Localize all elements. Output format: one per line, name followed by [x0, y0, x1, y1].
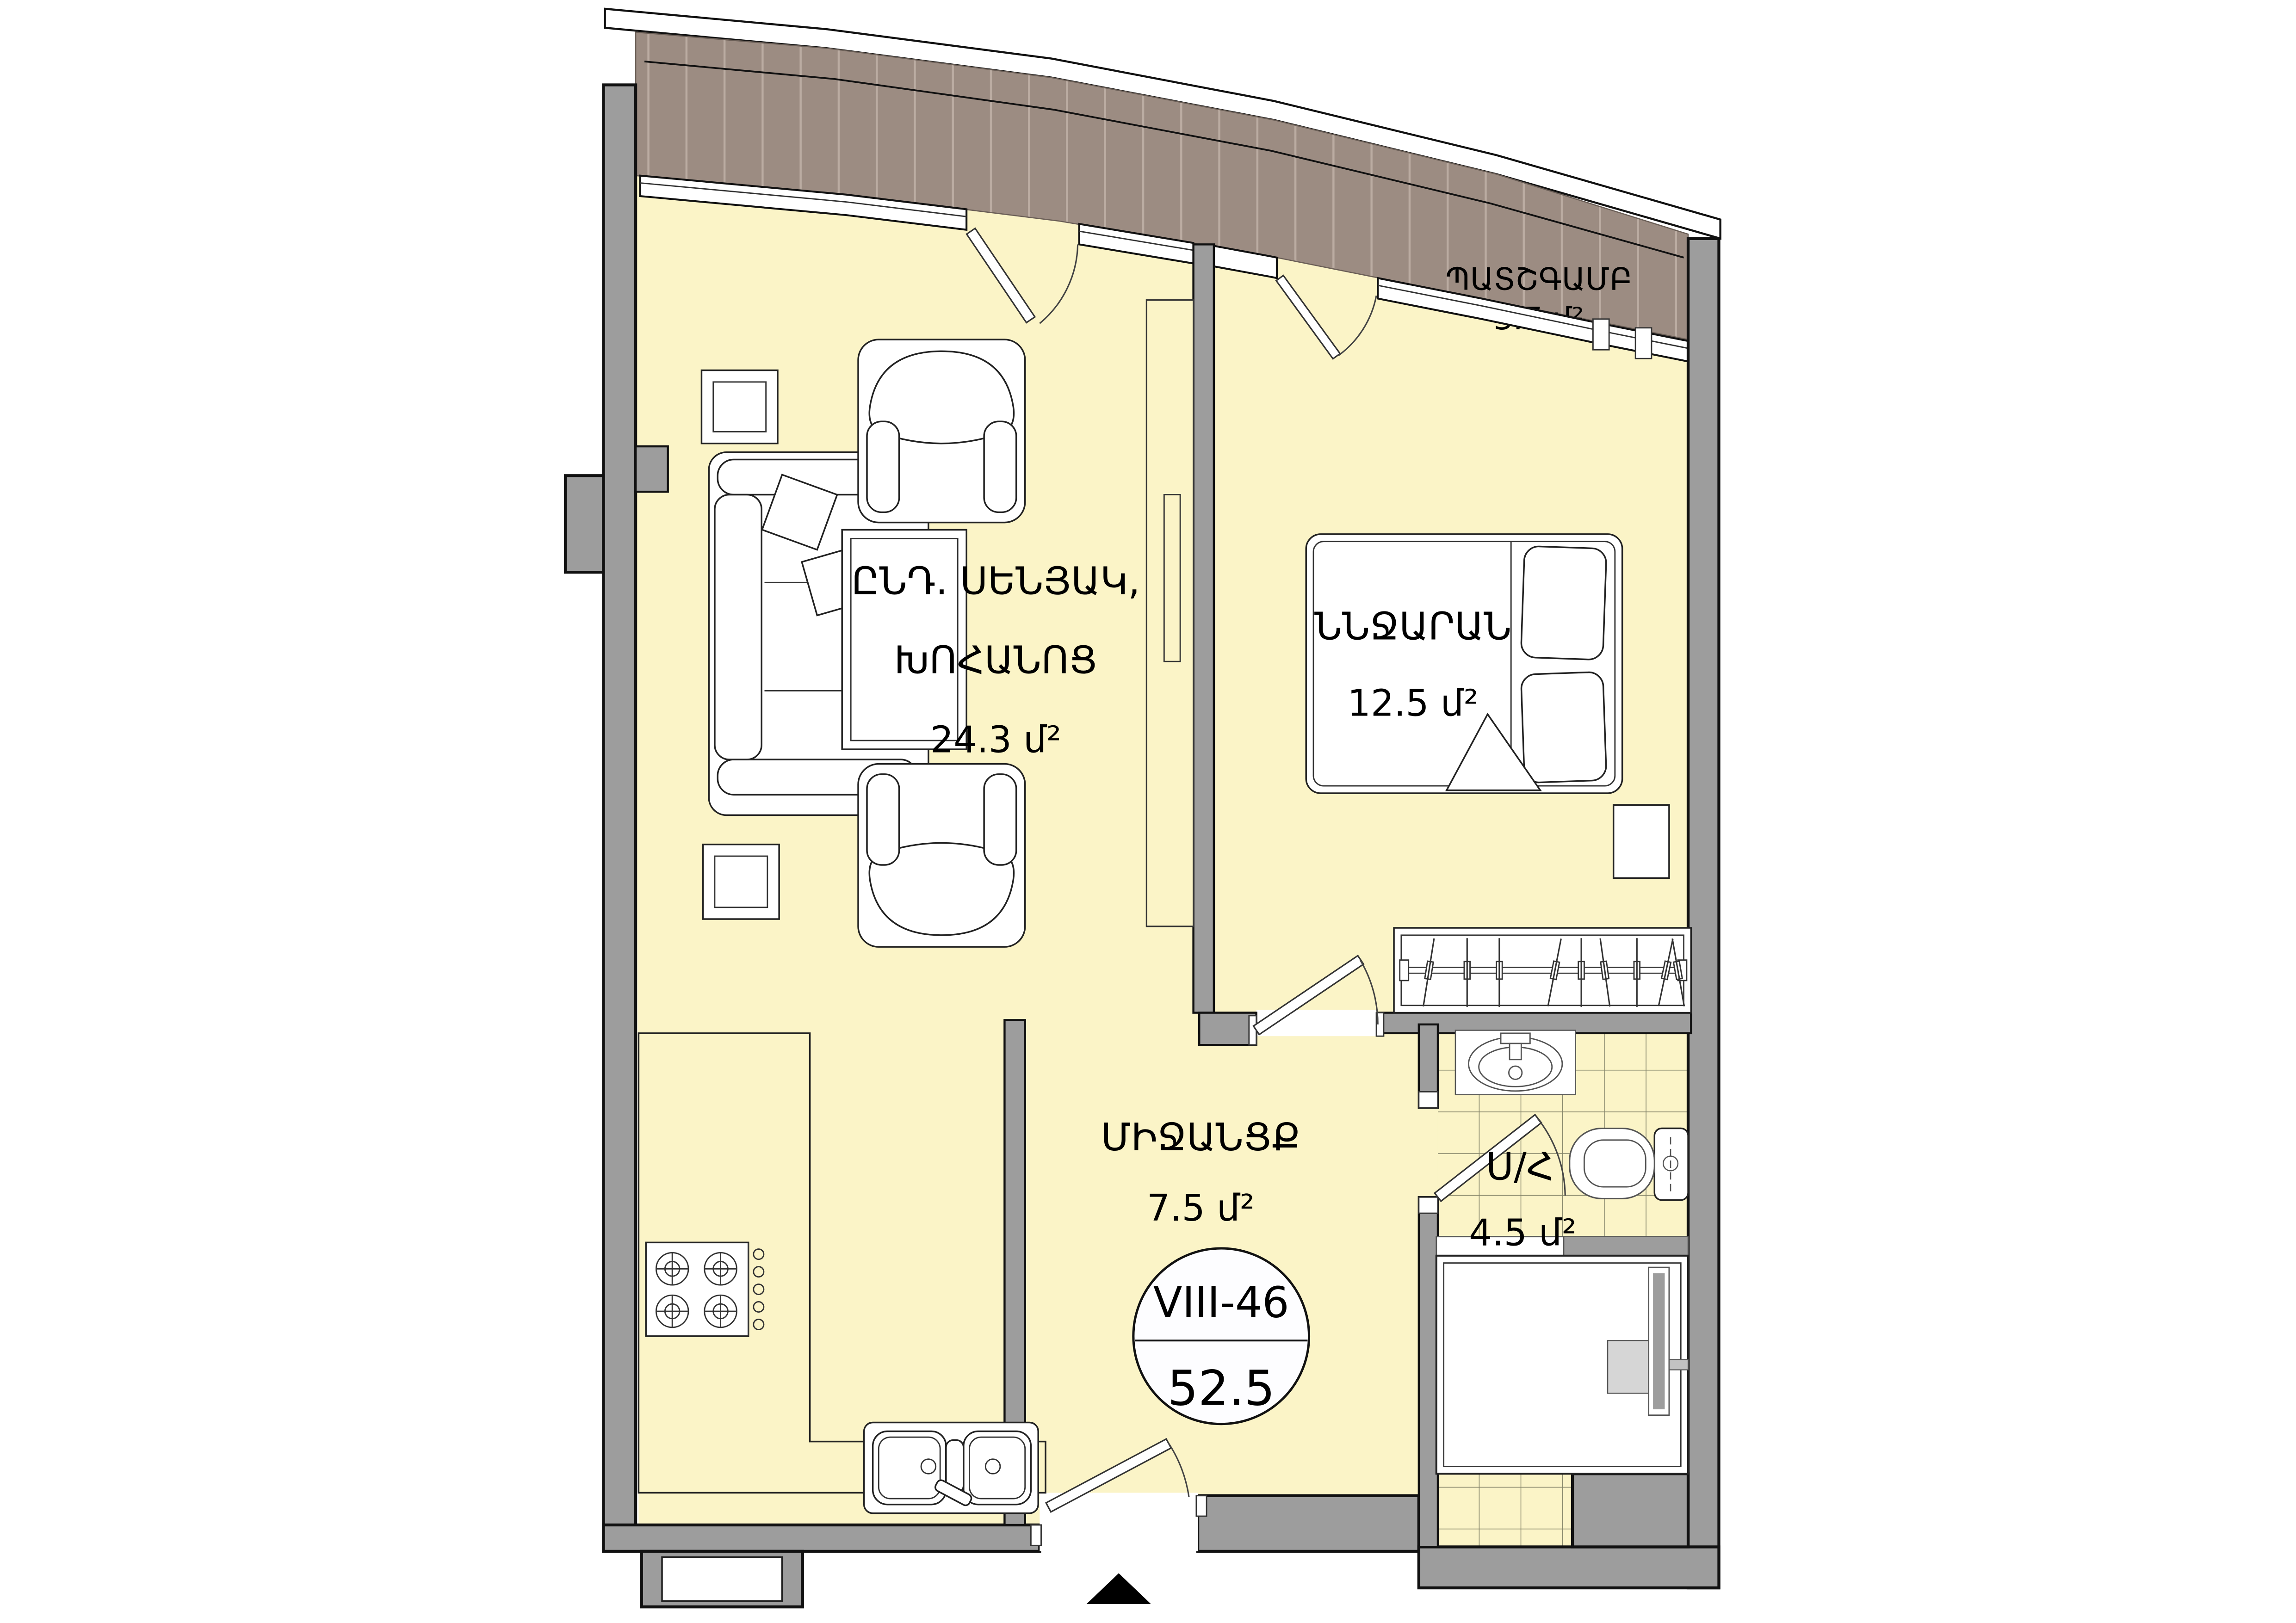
wall-bottom-bathroom — [1419, 1547, 1719, 1588]
washbasin — [1455, 1031, 1575, 1095]
hallway-area: 7.5 մ² — [1147, 1187, 1255, 1229]
tv-cabinet-body — [1146, 300, 1193, 926]
wall-left-pier — [565, 475, 603, 572]
jamb-bath-top — [1419, 1092, 1438, 1108]
floor-plan-page: ՊԱՏՇԳԱՄԲ 3.7 մ² — [0, 0, 2296, 1623]
tv-cabinet — [1146, 300, 1193, 926]
toilet-bowl — [1570, 1129, 1655, 1199]
wall-right-outer — [1688, 239, 1719, 1588]
washbasin-faucet-bar — [1501, 1033, 1530, 1043]
balcony-label: ՊԱՏՇԳԱՄԲ — [1446, 261, 1632, 297]
armchair-bottom — [858, 764, 1025, 947]
wall-bottom-right — [1198, 1496, 1419, 1551]
bathtub-wall-strip — [1564, 1237, 1688, 1256]
wardrobe-rail-end-left — [1400, 960, 1409, 981]
bed-pillow-1 — [1521, 546, 1606, 660]
stove — [646, 1242, 764, 1336]
nightstand — [1614, 805, 1669, 878]
unit-id: VIII-46 — [1153, 1278, 1289, 1327]
jamb-entry-left — [1031, 1525, 1041, 1545]
window-jamb-block-2 — [1635, 328, 1652, 358]
living-label-line1: ԸՆԴ. ՍԵՆՅԱԿ, — [851, 560, 1140, 604]
jamb-entry-right — [1196, 1496, 1207, 1516]
wardrobe — [1394, 928, 1691, 1013]
wall-divider-stub — [1199, 1013, 1256, 1045]
north-entry-marker-icon — [1087, 1573, 1151, 1604]
unit-badge: VIII-46 52.5 — [1133, 1248, 1309, 1424]
hallway-label: ՄԻՋԱՆՑՔ — [1101, 1116, 1301, 1160]
bedroom-area: 12.5 մ² — [1348, 682, 1479, 724]
jamb-bath-bottom — [1419, 1197, 1438, 1213]
wall-step-chunk — [1572, 1474, 1688, 1547]
side-table-bottom — [703, 845, 780, 919]
sink-bowl-right — [964, 1432, 1031, 1505]
wall-bottom-left — [603, 1525, 1040, 1551]
wall-inner-column — [636, 446, 668, 492]
bathtub — [1436, 1237, 1688, 1474]
bathtub-mixer-box — [1608, 1340, 1649, 1393]
unit-total-area: 52.5 — [1167, 1360, 1275, 1417]
bed — [1306, 534, 1622, 793]
bathtub-rail-inner — [1653, 1273, 1665, 1409]
armchair-top-arm-left — [867, 421, 899, 512]
wall-bathroom-left-lower — [1419, 1197, 1438, 1547]
toilet-tank — [1654, 1129, 1688, 1200]
floor-plan-svg: ՊԱՏՇԳԱՄԲ 3.7 մ² — [0, 0, 2296, 1623]
bathroom-label: Ս/Հ — [1486, 1145, 1554, 1189]
bedroom-label: ՆՆՋԱՐԱՆ — [1314, 605, 1511, 649]
bathroom-tile-floor-lower — [1438, 1474, 1572, 1547]
living-label-line2: ԽՈՀԱՆՈՑ — [894, 638, 1097, 682]
wall-partition-living-bedroom — [1194, 244, 1214, 1012]
bathtub-wall-pipe — [1669, 1359, 1688, 1370]
kitchen-sink — [864, 1423, 1039, 1513]
toilet — [1570, 1129, 1688, 1200]
sofa-back — [715, 494, 761, 759]
bed-pillow-2 — [1521, 672, 1606, 783]
living-area: 24.3 մ² — [930, 718, 1061, 761]
armchair-top-arm-right — [984, 421, 1016, 512]
washbasin-faucet-stem — [1510, 1043, 1521, 1060]
armchair-top — [858, 339, 1025, 523]
armchair-bottom-arm-left — [867, 774, 899, 865]
bathroom-area: 4.5 մ² — [1469, 1212, 1577, 1254]
wall-left-outer — [603, 85, 636, 1551]
window-jamb-block-1 — [1593, 319, 1609, 350]
armchair-bottom-arm-right — [984, 774, 1016, 865]
side-table-top — [701, 370, 778, 444]
jamb-bedroom-left — [1249, 1016, 1256, 1045]
shaft-opening — [662, 1557, 782, 1601]
